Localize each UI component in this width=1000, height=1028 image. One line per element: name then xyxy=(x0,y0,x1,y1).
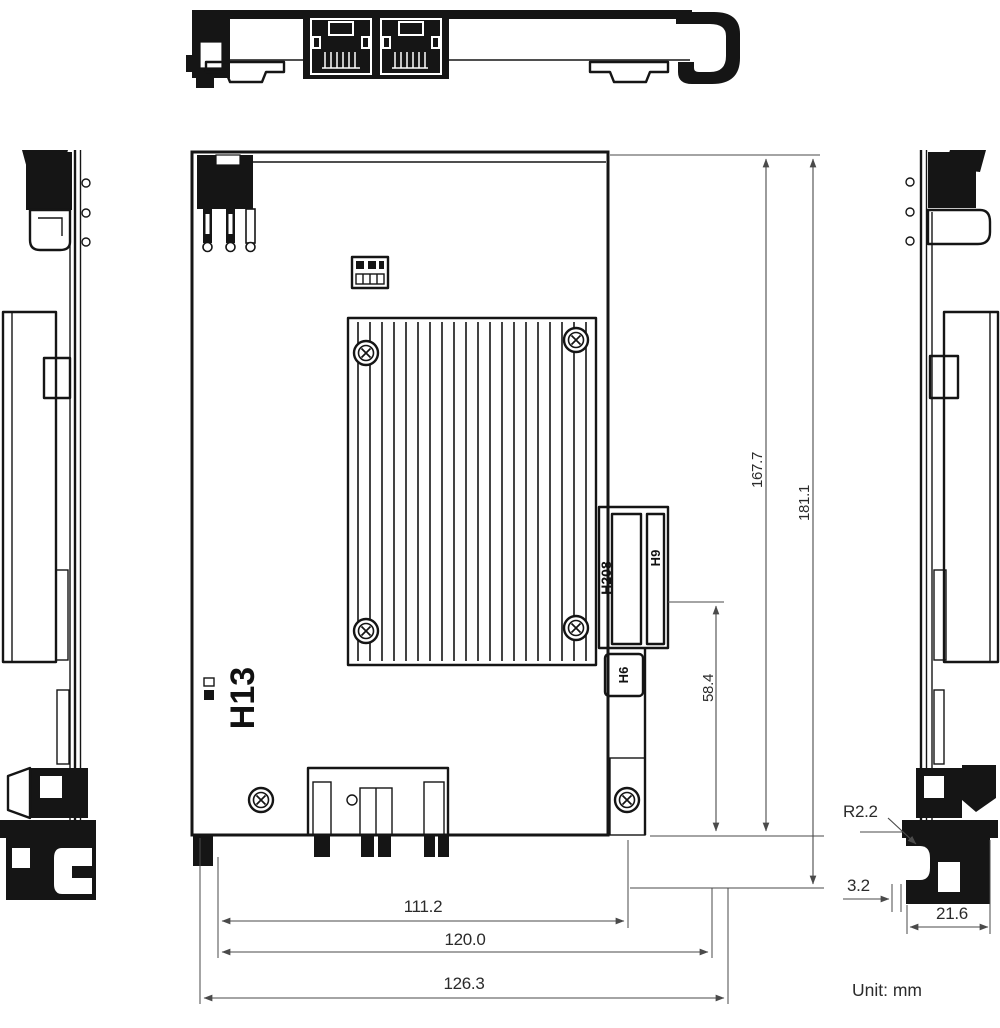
label-h6: H6 xyxy=(616,667,631,684)
screw-icon xyxy=(249,788,273,812)
bracket-foot-left xyxy=(0,768,96,900)
dim-text-overall-length: 181.1 xyxy=(796,485,813,521)
bracket-face-top-rail xyxy=(222,10,692,19)
dim-text-width-inner: 111.2 xyxy=(404,897,443,916)
rj45-ports-icon xyxy=(303,13,449,79)
dim-text-tab-thickness: 3.2 xyxy=(847,876,870,895)
right-profile-view xyxy=(902,150,998,904)
mechanical-drawing-page: H208 H9 H6 H13 xyxy=(0,0,1000,1028)
bracket-foot-right xyxy=(902,765,998,904)
screw-icon xyxy=(615,788,639,812)
rj45-side-profile xyxy=(928,152,976,208)
dim-text-width-total: 126.3 xyxy=(443,974,484,993)
rj45-side-profile xyxy=(26,152,72,210)
screw-icon xyxy=(354,619,378,643)
io-connector xyxy=(197,155,255,252)
dim-text-connector-to-edge: 58.4 xyxy=(700,674,717,702)
connector-h6: H6 xyxy=(605,654,643,696)
left-profile-view xyxy=(0,150,96,900)
screw-icon xyxy=(564,328,588,352)
unit-note: Unit: mm xyxy=(852,980,922,1000)
pcb-front-view: H208 H9 H6 H13 xyxy=(192,152,668,866)
heatsink-side-profile xyxy=(3,312,56,662)
dim-text-board-length: 167.7 xyxy=(749,452,766,488)
bracket-foot-notch-right xyxy=(590,62,668,82)
dim-text-width-bracket: 120.0 xyxy=(444,930,485,949)
screw-icon xyxy=(564,616,588,640)
label-h9: H9 xyxy=(648,550,663,567)
screw-icon xyxy=(354,341,378,365)
dim-text-corner-radius: R2.2 xyxy=(843,802,878,821)
top-bracket-view xyxy=(186,10,740,88)
label-h208: H208 xyxy=(598,561,614,595)
pcb-outline xyxy=(192,152,608,835)
bracket-right-hook xyxy=(676,12,740,84)
dim-text-foot-width: 21.6 xyxy=(936,904,968,923)
label-h13: H13 xyxy=(224,667,262,729)
